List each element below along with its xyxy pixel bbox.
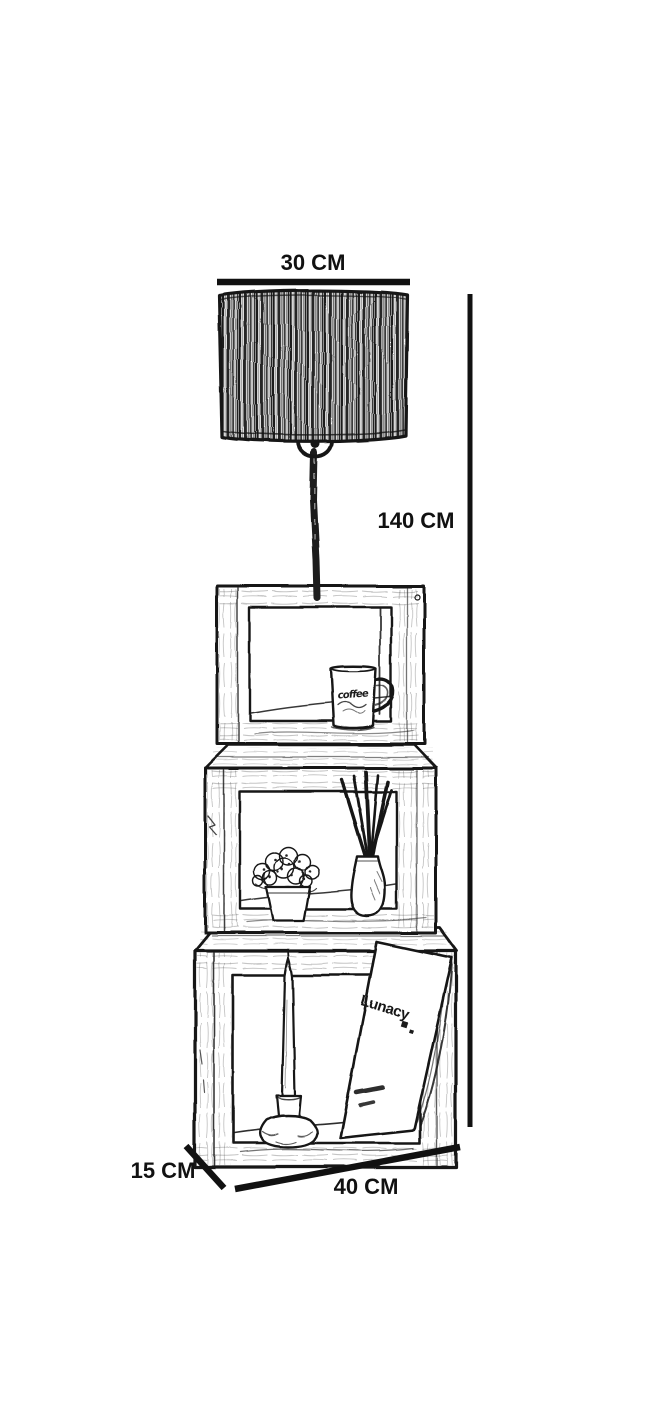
crate-top-grain-left <box>219 589 237 741</box>
candle-body <box>282 958 295 1096</box>
crate-middle-grain-right <box>399 770 434 931</box>
crate-top: coffee <box>217 586 424 744</box>
crate-top-grain-right <box>393 589 422 741</box>
crate-top-grain-bottom <box>220 723 422 742</box>
flower-pot-body <box>266 887 310 921</box>
crate-bottom: Lunacy <box>195 928 457 1167</box>
floor-lamp <box>219 291 408 598</box>
sketch-canvas: Lunacy <box>0 0 649 1403</box>
product-dimension-sketch: Lunacy <box>0 0 649 1403</box>
crate-middle-grain-left <box>207 770 238 931</box>
diffuser-vase <box>351 856 385 916</box>
crate-middle-grain-topface <box>210 748 432 766</box>
crate-top-grain-top <box>220 588 422 605</box>
dim-shade-width-label: 30 CM <box>281 250 346 275</box>
crate-bottom-grain-left <box>197 953 231 1165</box>
candle-wick <box>288 950 289 958</box>
mug-label: coffee <box>337 689 369 702</box>
crate-middle-grain-bottom <box>207 911 434 931</box>
crate-middle <box>205 745 436 933</box>
candle-holder-base <box>260 1116 318 1148</box>
dim-height-label: 140 CM <box>377 508 454 533</box>
dim-depth-label: 15 CM <box>131 1158 196 1183</box>
lamp-shade <box>219 291 408 442</box>
crate-middle-grain-top <box>207 770 434 790</box>
sketch-group: Lunacy <box>195 291 457 1167</box>
dim-width-label: 40 CM <box>334 1174 399 1199</box>
